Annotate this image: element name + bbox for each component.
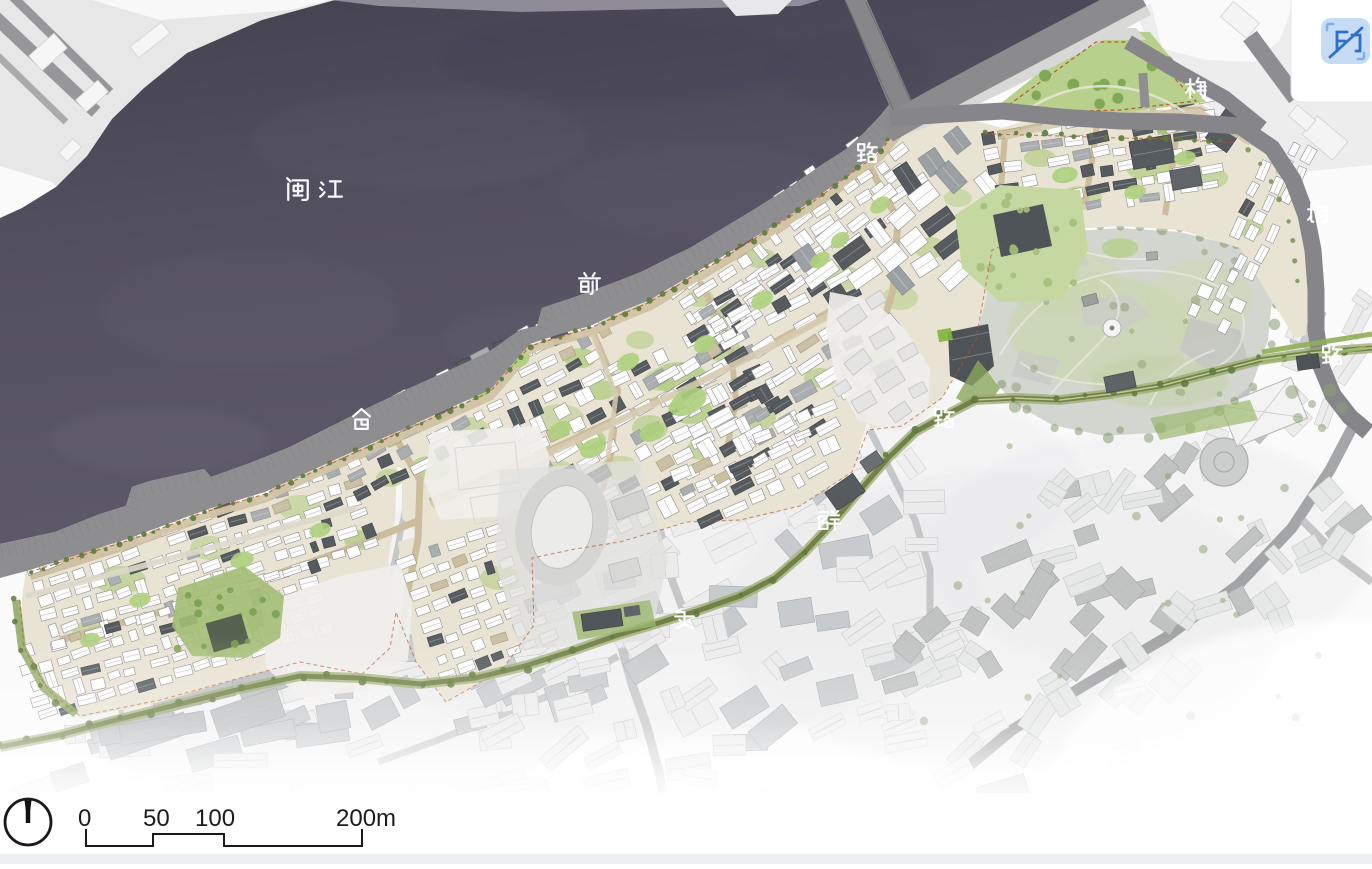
svg-text:100: 100 <box>195 805 235 832</box>
svg-text:50: 50 <box>143 805 170 832</box>
svg-text:200m: 200m <box>336 805 396 832</box>
svg-text:0: 0 <box>78 805 91 832</box>
